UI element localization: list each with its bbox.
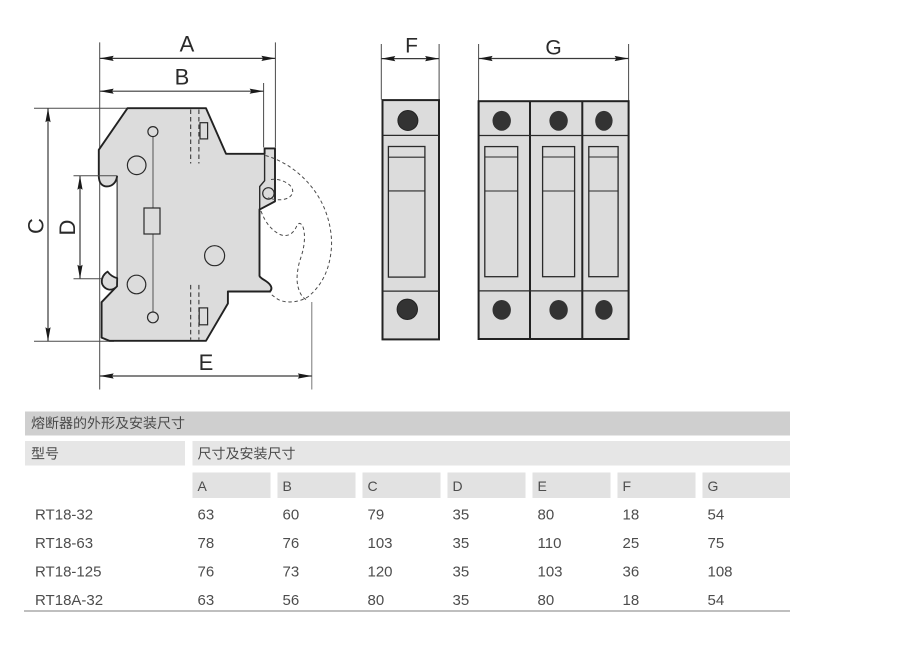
svg-text:E: E bbox=[199, 350, 214, 375]
svg-text:60: 60 bbox=[283, 507, 300, 524]
svg-text:63: 63 bbox=[198, 507, 215, 524]
svg-text:18: 18 bbox=[623, 592, 640, 609]
svg-text:35: 35 bbox=[453, 564, 470, 581]
svg-text:103: 103 bbox=[368, 535, 393, 552]
svg-text:RT18-63: RT18-63 bbox=[35, 535, 93, 552]
svg-text:C: C bbox=[23, 218, 48, 234]
svg-text:54: 54 bbox=[708, 507, 725, 524]
svg-text:RT18A-32: RT18A-32 bbox=[35, 592, 103, 609]
svg-text:120: 120 bbox=[368, 564, 393, 581]
svg-text:B: B bbox=[283, 478, 292, 494]
svg-text:35: 35 bbox=[453, 535, 470, 552]
svg-text:103: 103 bbox=[538, 564, 563, 581]
svg-text:G: G bbox=[545, 37, 561, 60]
svg-text:108: 108 bbox=[708, 564, 733, 581]
svg-text:D: D bbox=[453, 478, 463, 494]
svg-text:18: 18 bbox=[623, 507, 640, 524]
svg-text:C: C bbox=[368, 478, 378, 494]
svg-text:79: 79 bbox=[368, 507, 385, 524]
svg-text:76: 76 bbox=[198, 564, 215, 581]
svg-text:RT18-32: RT18-32 bbox=[35, 507, 93, 524]
svg-text:B: B bbox=[175, 65, 190, 90]
svg-text:RT18-125: RT18-125 bbox=[35, 564, 101, 581]
svg-text:80: 80 bbox=[368, 592, 385, 609]
svg-text:80: 80 bbox=[538, 592, 555, 609]
svg-text:76: 76 bbox=[283, 535, 300, 552]
svg-text:F: F bbox=[405, 34, 418, 57]
svg-text:63: 63 bbox=[198, 592, 215, 609]
svg-text:73: 73 bbox=[283, 564, 300, 581]
svg-text:75: 75 bbox=[708, 535, 725, 552]
svg-text:80: 80 bbox=[538, 507, 555, 524]
svg-text:35: 35 bbox=[453, 507, 470, 524]
svg-text:35: 35 bbox=[453, 592, 470, 609]
svg-text:56: 56 bbox=[283, 592, 300, 609]
svg-text:A: A bbox=[198, 478, 208, 494]
svg-text:F: F bbox=[623, 478, 632, 494]
svg-text:G: G bbox=[708, 478, 719, 494]
svg-text:A: A bbox=[180, 32, 195, 57]
svg-text:D: D bbox=[55, 220, 80, 236]
svg-text:110: 110 bbox=[538, 535, 562, 552]
svg-text:E: E bbox=[538, 478, 547, 494]
svg-text:25: 25 bbox=[623, 535, 640, 552]
svg-text:78: 78 bbox=[198, 535, 215, 552]
svg-text:54: 54 bbox=[708, 592, 725, 609]
svg-text:36: 36 bbox=[623, 564, 640, 581]
